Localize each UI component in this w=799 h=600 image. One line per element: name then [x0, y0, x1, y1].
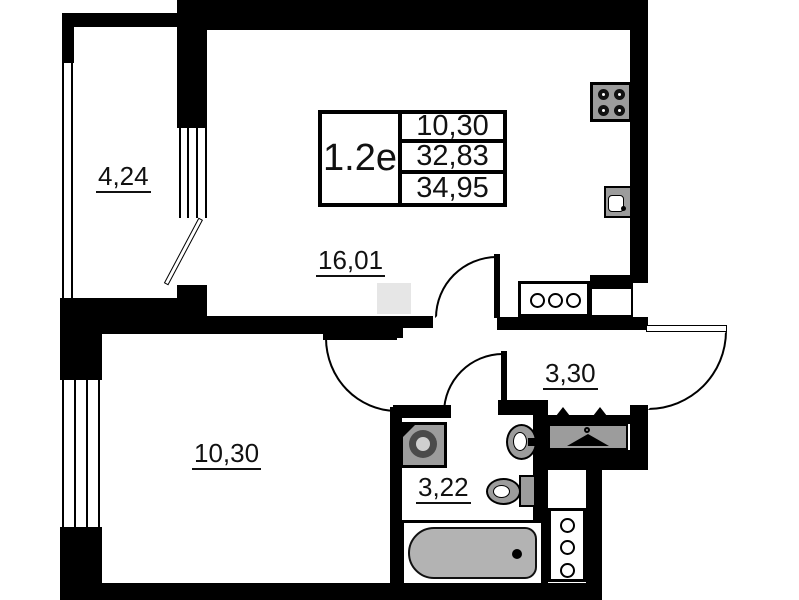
- balcony-door-leaf-icon: [164, 218, 203, 286]
- window-line: [187, 128, 189, 218]
- bathtub-drain-icon: [512, 549, 522, 559]
- wardrobe-icon: [548, 424, 628, 450]
- entrance-door-arc-icon: [648, 331, 727, 410]
- counter-segment-icon: [590, 287, 633, 317]
- wardrobe-hanger-icon: [567, 434, 609, 446]
- living-window-icon: [179, 128, 207, 218]
- hanger-hook-icon: [584, 427, 590, 433]
- kitchen-counter-icon: [518, 281, 590, 317]
- bedroom-area-label: 10,30: [192, 440, 261, 470]
- counter-knob-icon: [566, 293, 581, 308]
- bedroom-door-arc-icon: [325, 338, 397, 412]
- burner-icon: [614, 89, 625, 100]
- wall: [177, 30, 207, 128]
- window-line: [205, 128, 207, 218]
- sink-drain-icon: [621, 206, 626, 211]
- stove-icon: [590, 82, 632, 122]
- wall: [590, 275, 633, 287]
- window-line: [62, 380, 64, 527]
- wall: [630, 30, 648, 283]
- service-cabinet-icon: [548, 508, 586, 582]
- toilet-tank-icon: [519, 475, 536, 507]
- bathroom-door-arc-icon: [443, 353, 503, 413]
- washbasin-faucet-icon: [528, 438, 537, 446]
- bedroom-window-icon: [62, 380, 100, 527]
- window-line: [98, 380, 100, 527]
- living-door-arc-icon: [435, 256, 497, 318]
- counter-knob-icon: [530, 293, 545, 308]
- cabinet-knob-icon: [560, 518, 575, 533]
- area-value-cell: 34,95: [398, 170, 507, 207]
- unit-number: 1.2e: [323, 137, 397, 180]
- burner-icon: [598, 105, 609, 116]
- burner-icon: [598, 89, 609, 100]
- floor-plan: 1.2e 10,30 32,83 34,95 4,24 16,01 3,30 1…: [0, 0, 799, 600]
- washing-machine-icon: [400, 422, 447, 468]
- window-line: [179, 128, 181, 218]
- cabinet-knob-icon: [560, 540, 575, 555]
- wall: [62, 13, 177, 27]
- hook-mark-icon: [556, 407, 570, 416]
- counter-knob-icon: [548, 293, 563, 308]
- window-line: [71, 63, 73, 298]
- hallway-area-label: 3,30: [543, 360, 598, 390]
- radiator-ghost: [377, 283, 411, 314]
- total-area-with-balcony-value: 34,95: [416, 172, 489, 205]
- unit-number-cell: 1.2e: [318, 110, 402, 207]
- cabinet-knob-icon: [560, 563, 575, 578]
- bathroom-area-label: 3,22: [416, 474, 471, 504]
- wall: [177, 0, 648, 30]
- balcony-glazing-window-icon: [62, 63, 73, 298]
- window-line: [62, 63, 64, 298]
- hook-mark-icon: [593, 407, 607, 416]
- window-line: [74, 380, 76, 527]
- washing-machine-drum-icon: [409, 430, 437, 458]
- kitchen-sink-icon: [604, 186, 632, 218]
- wall: [497, 317, 648, 330]
- wall: [60, 298, 102, 380]
- total-area-value: 32,83: [416, 140, 489, 173]
- toilet-icon: [486, 478, 521, 505]
- wall: [630, 405, 648, 470]
- bathtub-icon: [401, 520, 544, 586]
- washbasin-bowl-icon: [513, 432, 527, 451]
- balcony-area-label: 4,24: [96, 163, 151, 193]
- area-value-cell: 32,83: [398, 139, 507, 174]
- window-line: [86, 380, 88, 527]
- burner-icon: [614, 105, 625, 116]
- toilet-bowl-icon: [493, 485, 510, 498]
- wall: [586, 470, 602, 583]
- window-line: [196, 128, 198, 218]
- living-kitchen-area-label: 16,01: [316, 247, 385, 277]
